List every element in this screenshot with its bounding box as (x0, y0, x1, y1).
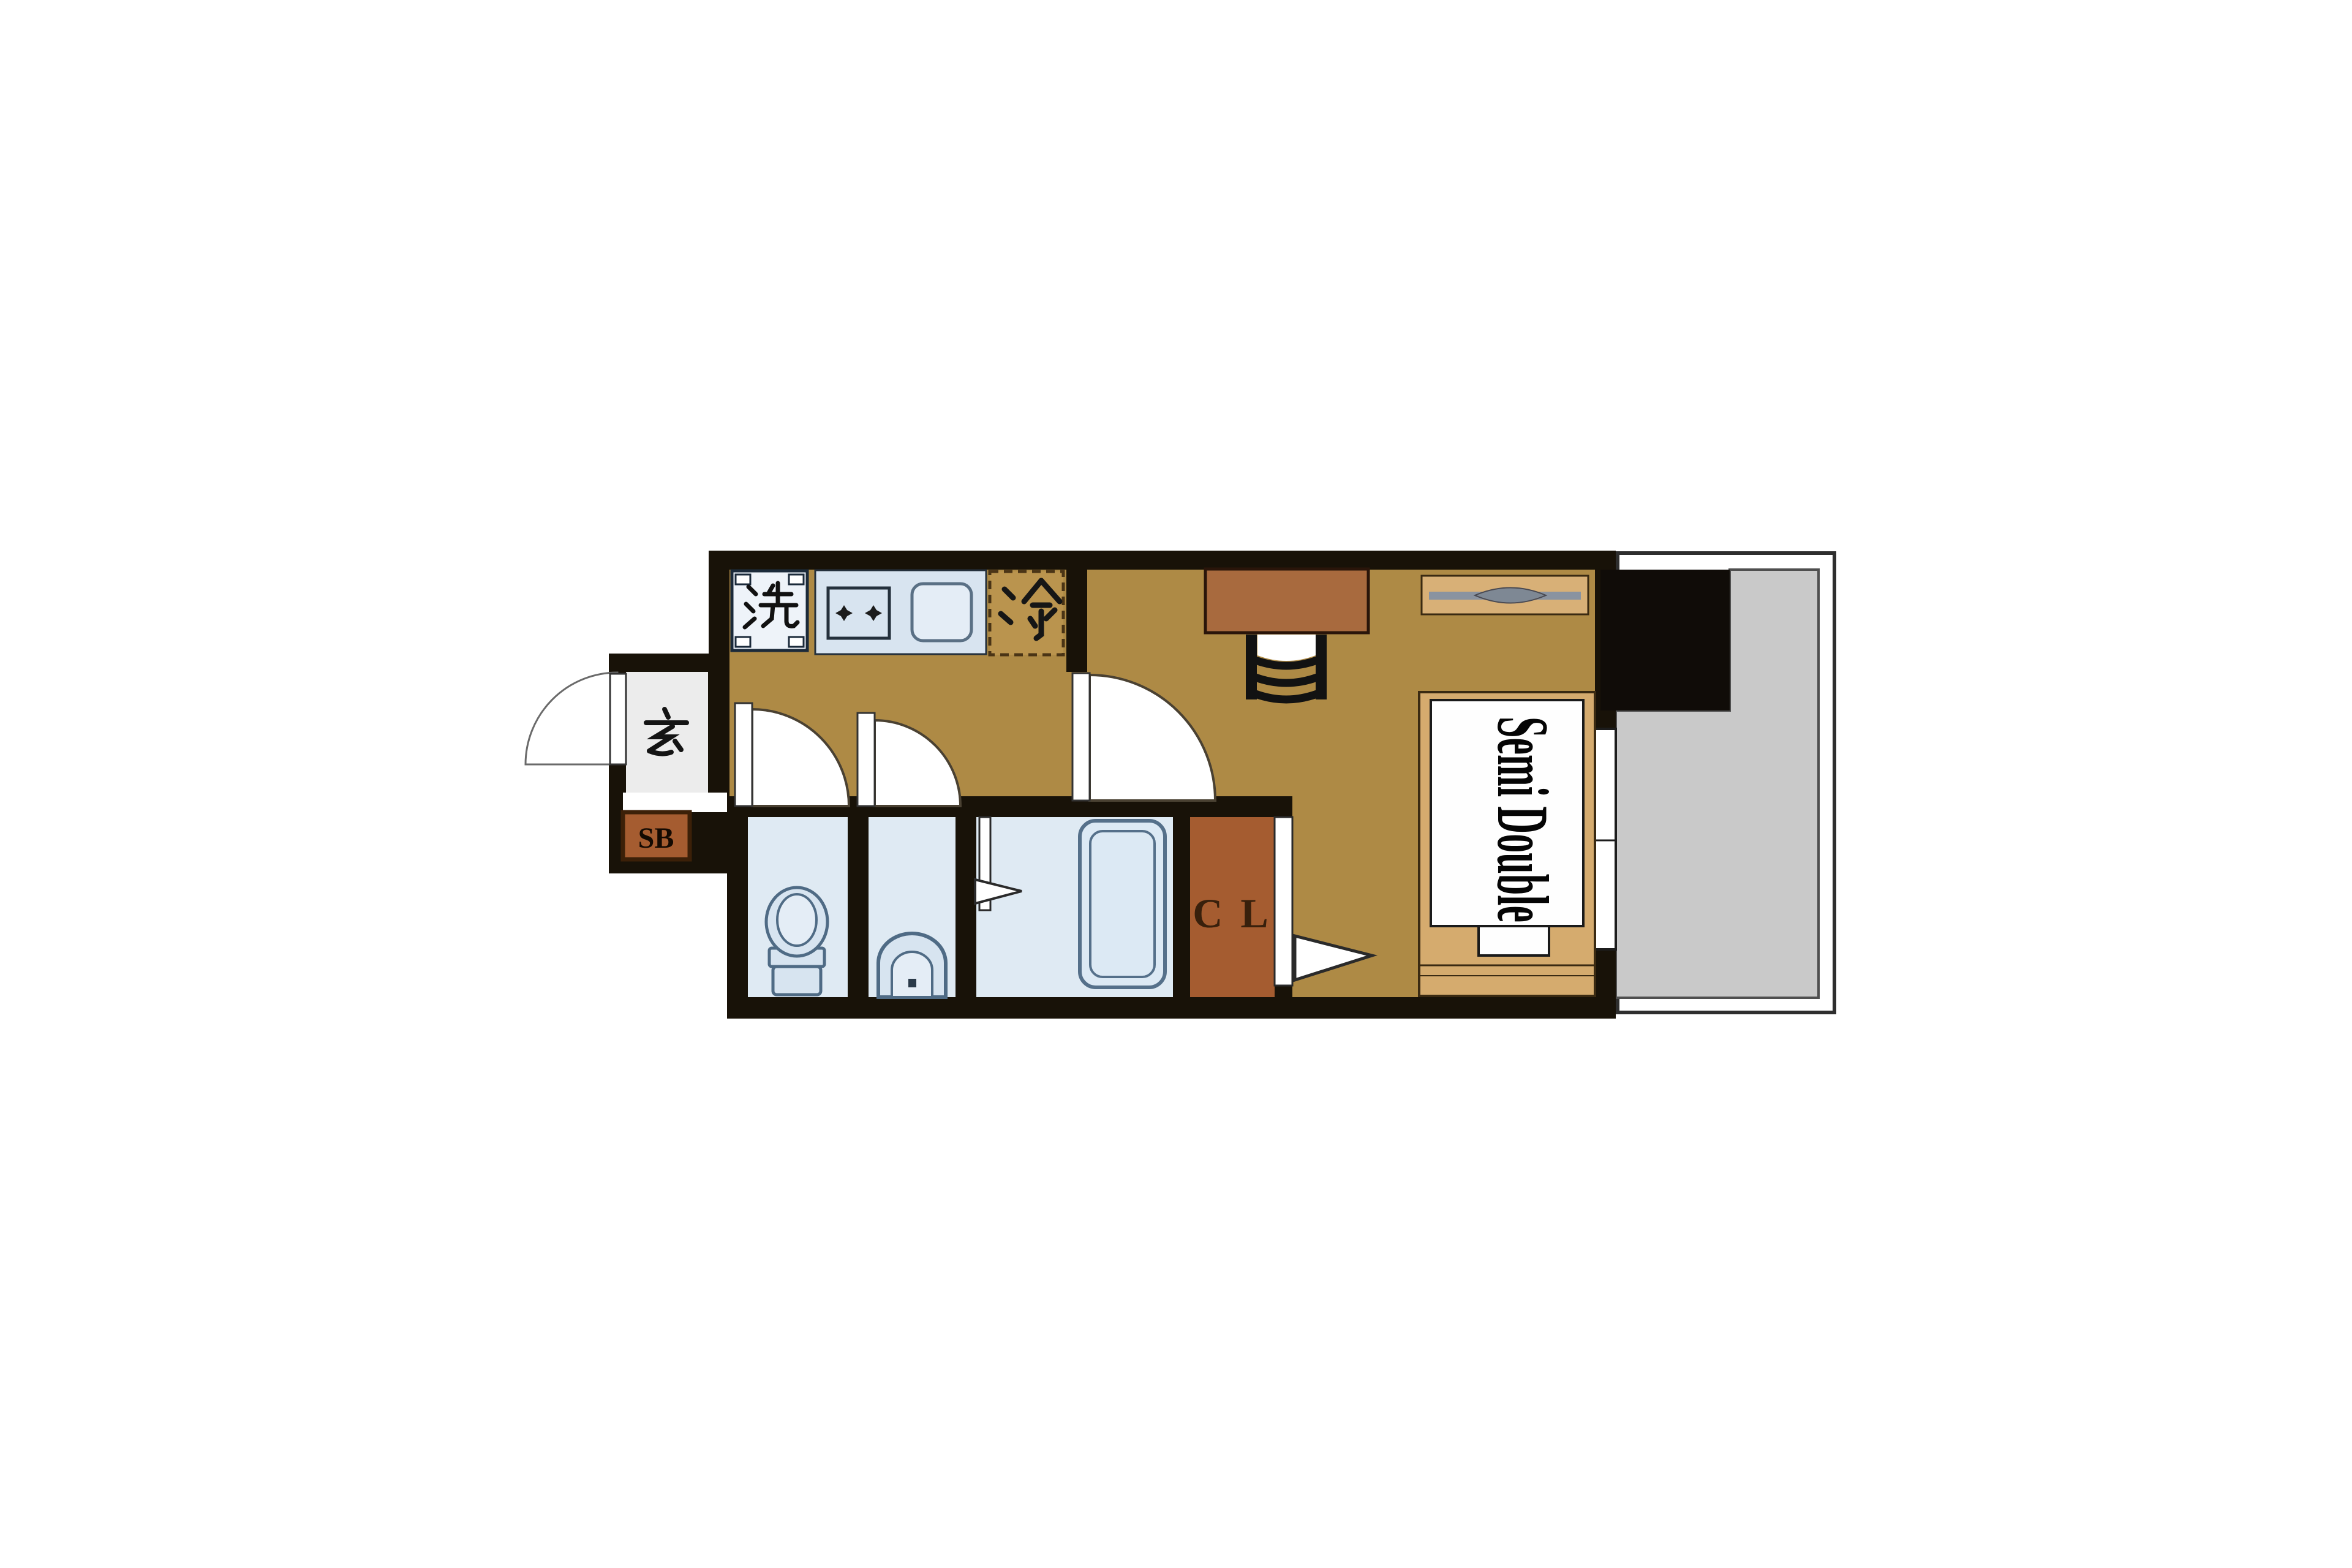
svg-text:SB: SB (638, 822, 674, 854)
svg-text:C L: C L (1193, 890, 1272, 937)
svg-text:Semi Double: Semi Double (1482, 717, 1564, 922)
